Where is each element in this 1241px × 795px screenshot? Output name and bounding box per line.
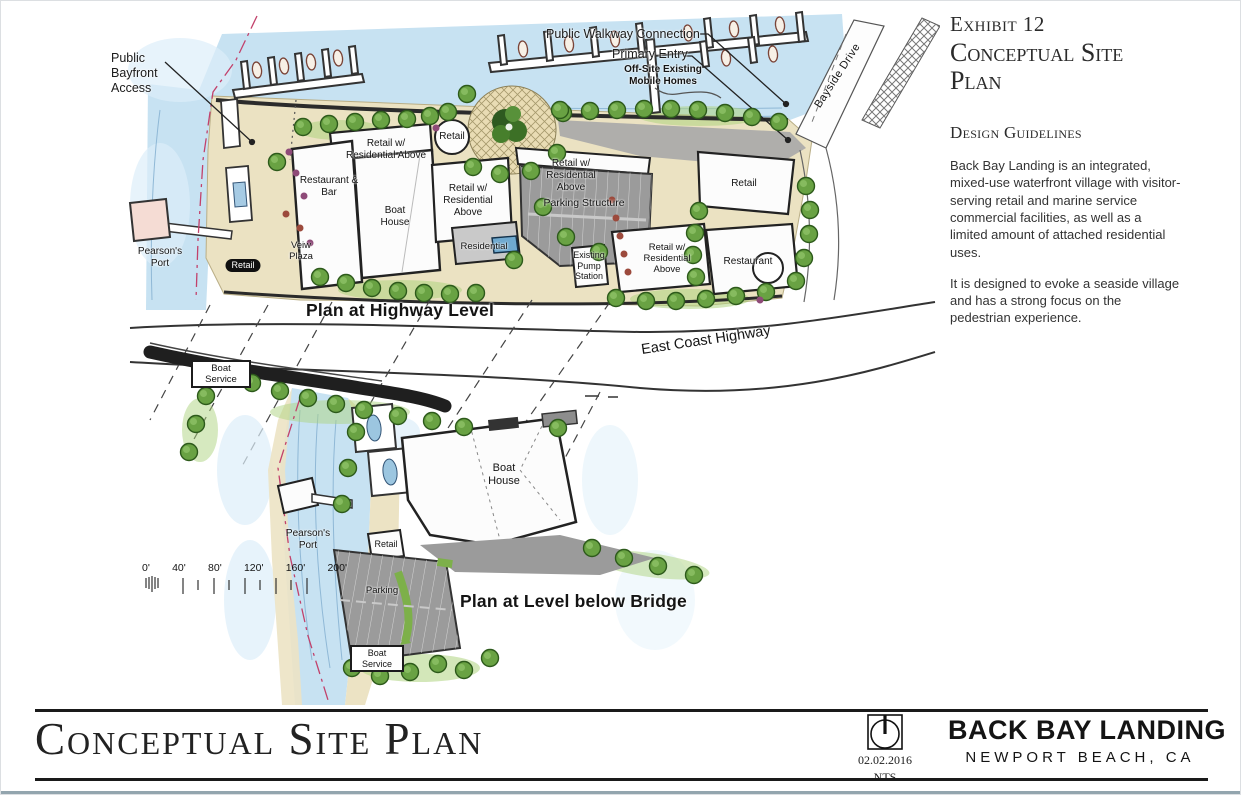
body-paragraph-2: It is designed to evoke a seaside villag… (950, 275, 1182, 327)
label-retail-lower: Retail (374, 539, 397, 550)
scale-tick-label: 160' (286, 562, 306, 574)
label-retail-residential-nw: Retail w/ Residential Above (341, 138, 431, 162)
exhibit-label: Exhibit 12 (950, 12, 1190, 37)
panel-title: Conceptual Site Plan (950, 39, 1175, 95)
project-location: NEWPORT BEACH, CA (948, 749, 1212, 766)
scale-tick-label: 120' (244, 562, 264, 574)
label-restaurant-east: Restaurant (724, 256, 773, 268)
scale-tick-label: 80' (208, 562, 222, 574)
body-paragraph-1: Back Bay Landing is an integrated, mixed… (950, 157, 1182, 261)
upper-plan-title: Plan at Highway Level (306, 300, 494, 321)
label-parking-lower: Parking (366, 585, 398, 596)
label-boat-house-upper: Boat House (372, 205, 418, 229)
label-parking-structure: Parking Structure (543, 197, 624, 209)
callout-public-walkway-connection: Public Walkway Connection (546, 27, 700, 42)
label-retail-residential-mid: Retail w/ Residential Above (438, 183, 498, 218)
callout-primary-entry: Primary Entry (612, 47, 688, 62)
callout-public-bayfront-access: Public Bayfront Access (111, 51, 177, 95)
lower-plan-title: Plan at Level below Bridge (460, 591, 687, 612)
rule-top (35, 709, 1208, 712)
north-arrow-stamp: 02.02.2016 NTS (856, 712, 914, 785)
site-plan-map: Public Bayfront Access Public Walkway Co… (0, 0, 940, 710)
lower-plan-graphics (150, 343, 711, 705)
sheet-title: Conceptual Site Plan (35, 713, 483, 765)
scale-bar: 0' 40' 80' 120' 160' 200' (142, 562, 347, 574)
label-view-plaza: Veiw Plaza (279, 240, 323, 262)
project-block: BACK BAY LANDING NEWPORT BEACH, CA (948, 715, 1212, 766)
label-retail-residential-parking: Retail w/ Residential Above (541, 158, 601, 193)
label-retail-east: Retail (731, 178, 757, 190)
label-retail-west: Retail (225, 259, 260, 272)
label-retail-kiosk: Retail (439, 131, 465, 143)
label-restaurant-bar: Restaurant & Bar (293, 175, 365, 199)
sheet-date: 02.02.2016 (856, 753, 914, 768)
scale-tick-label: 0' (142, 562, 150, 574)
label-retail-residential-east: Retail w/ Residential Above (637, 242, 697, 276)
label-pearsons-port-lower: Pearson's Port (276, 528, 340, 552)
exhibit-page: { "side_panel": { "exhibit": "Exhibit 12… (0, 0, 1241, 795)
north-arrow-icon (865, 712, 905, 752)
design-guidelines-panel: Exhibit 12 Conceptual Site Plan Design G… (950, 12, 1190, 327)
label-pearsons-port-upper: Pearson's Port (128, 246, 192, 270)
title-block: Conceptual Site Plan 02.02.2016 NTS BACK… (0, 700, 1241, 795)
callout-offsite-mobile-homes: Off-Site Existing Mobile Homes (609, 64, 717, 88)
scale-tick-label: 200' (327, 562, 347, 574)
label-boat-house-lower: Boat House (480, 462, 528, 488)
page-bottom-edge (0, 791, 1241, 795)
rule-bottom (35, 778, 1208, 781)
section-heading: Design Guidelines (950, 123, 1190, 143)
label-boat-service-south: Boat Service (350, 645, 404, 672)
label-boat-service-north: Boat Service (191, 360, 251, 388)
project-name: BACK BAY LANDING (948, 715, 1212, 746)
label-residential: Residential (461, 241, 508, 252)
label-existing-pump-station: Existing Pump Station (565, 250, 613, 282)
scale-tick-label: 40' (172, 562, 186, 574)
